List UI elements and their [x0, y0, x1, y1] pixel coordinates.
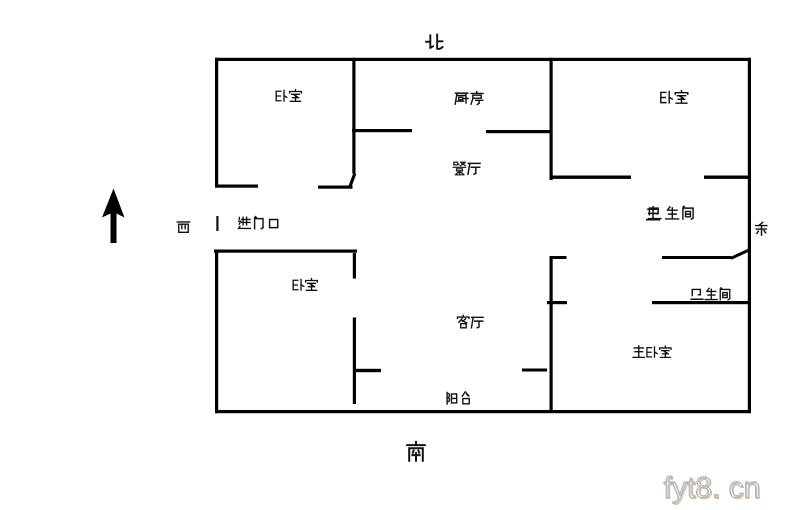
- svg-text:fyt8. cn: fyt8. cn: [664, 472, 761, 505]
